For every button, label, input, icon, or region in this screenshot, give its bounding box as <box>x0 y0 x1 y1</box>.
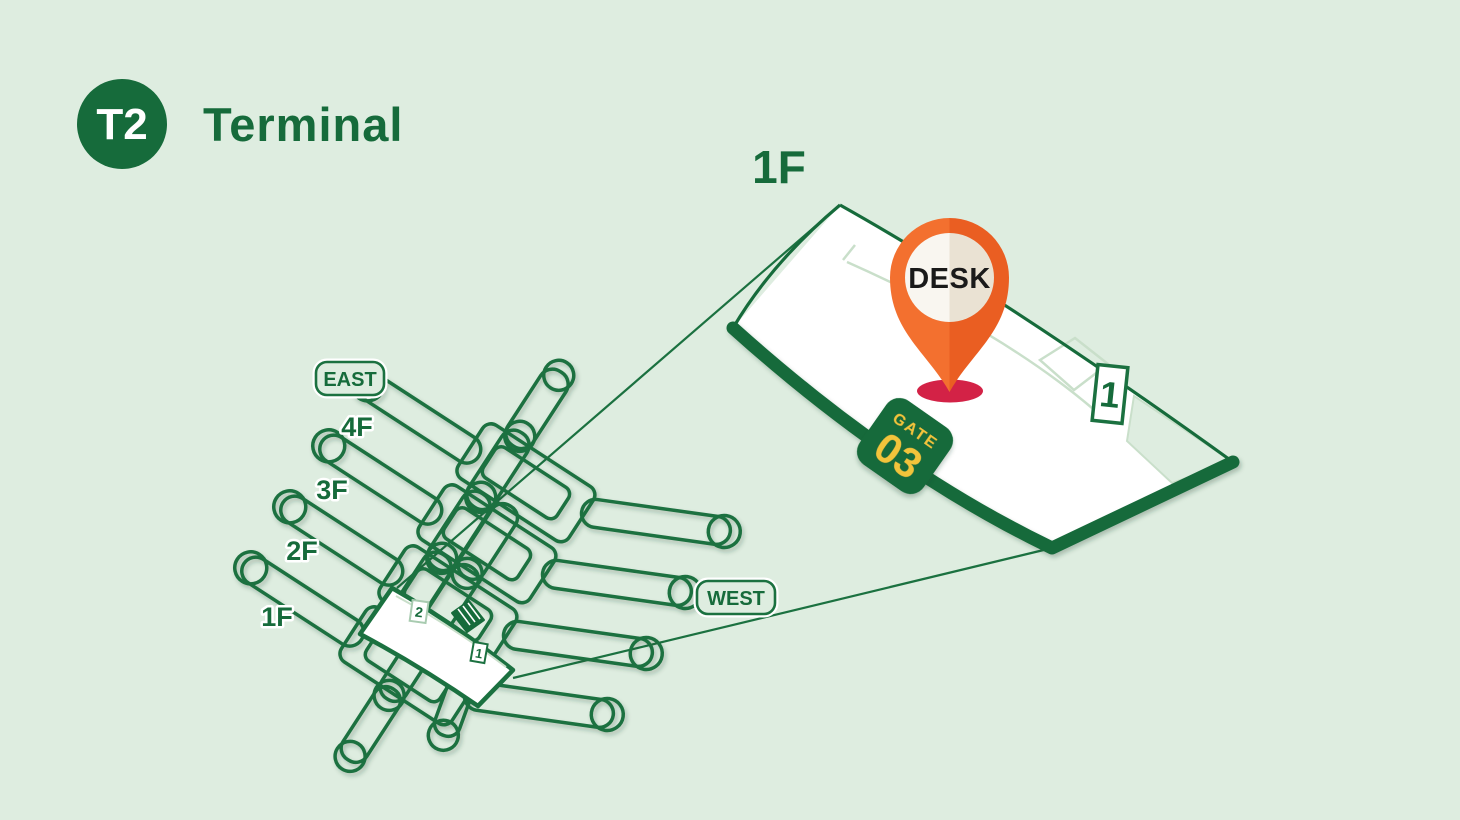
floor-label-2f: 2F <box>286 536 318 566</box>
west-label: WEST <box>707 588 765 610</box>
mini-gate2-marker: 2 <box>410 600 429 623</box>
exit-1-marker: 1 <box>1092 365 1128 424</box>
mini-exit1-marker: 1 <box>471 642 488 663</box>
east-label: EAST <box>323 369 376 391</box>
pin-desk-label: DESK <box>908 263 991 295</box>
page-title: Terminal <box>203 98 403 151</box>
detail-floor-title: 1F <box>752 141 806 193</box>
floor-label-1f: 1F <box>261 602 293 632</box>
floor-label-4f: 4F <box>341 412 373 442</box>
exit-1-label: 1 <box>1098 373 1122 416</box>
floor-label-3f: 3F <box>316 475 348 505</box>
terminal-map-canvas: 2 1 4F 3F 2F 1F EAST WEST <box>0 0 1460 820</box>
terminal-code-label: T2 <box>96 100 147 149</box>
terminal-map-page: 2 1 4F 3F 2F 1F EAST WEST <box>0 0 1460 820</box>
